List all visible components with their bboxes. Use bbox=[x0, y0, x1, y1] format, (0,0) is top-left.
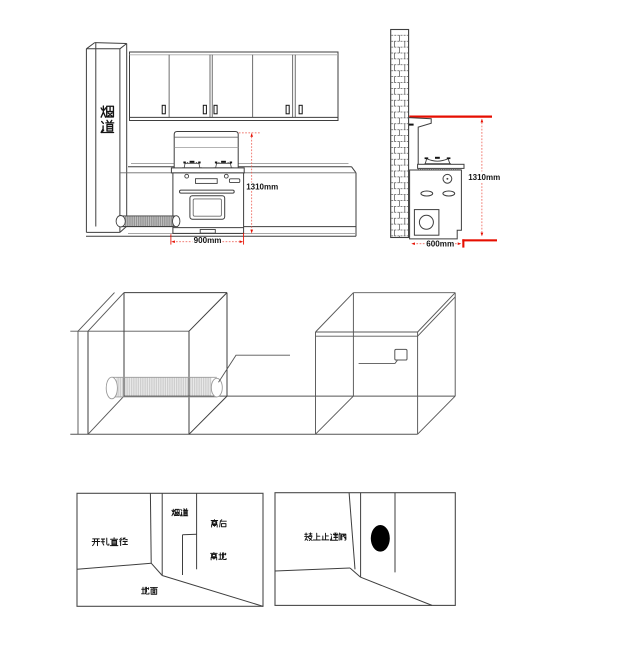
svg-text:600mm: 600mm bbox=[426, 239, 454, 248]
svg-text:1310mm: 1310mm bbox=[246, 182, 278, 191]
svg-text:900mm: 900mm bbox=[194, 236, 222, 245]
svg-text:1310mm: 1310mm bbox=[468, 173, 500, 182]
